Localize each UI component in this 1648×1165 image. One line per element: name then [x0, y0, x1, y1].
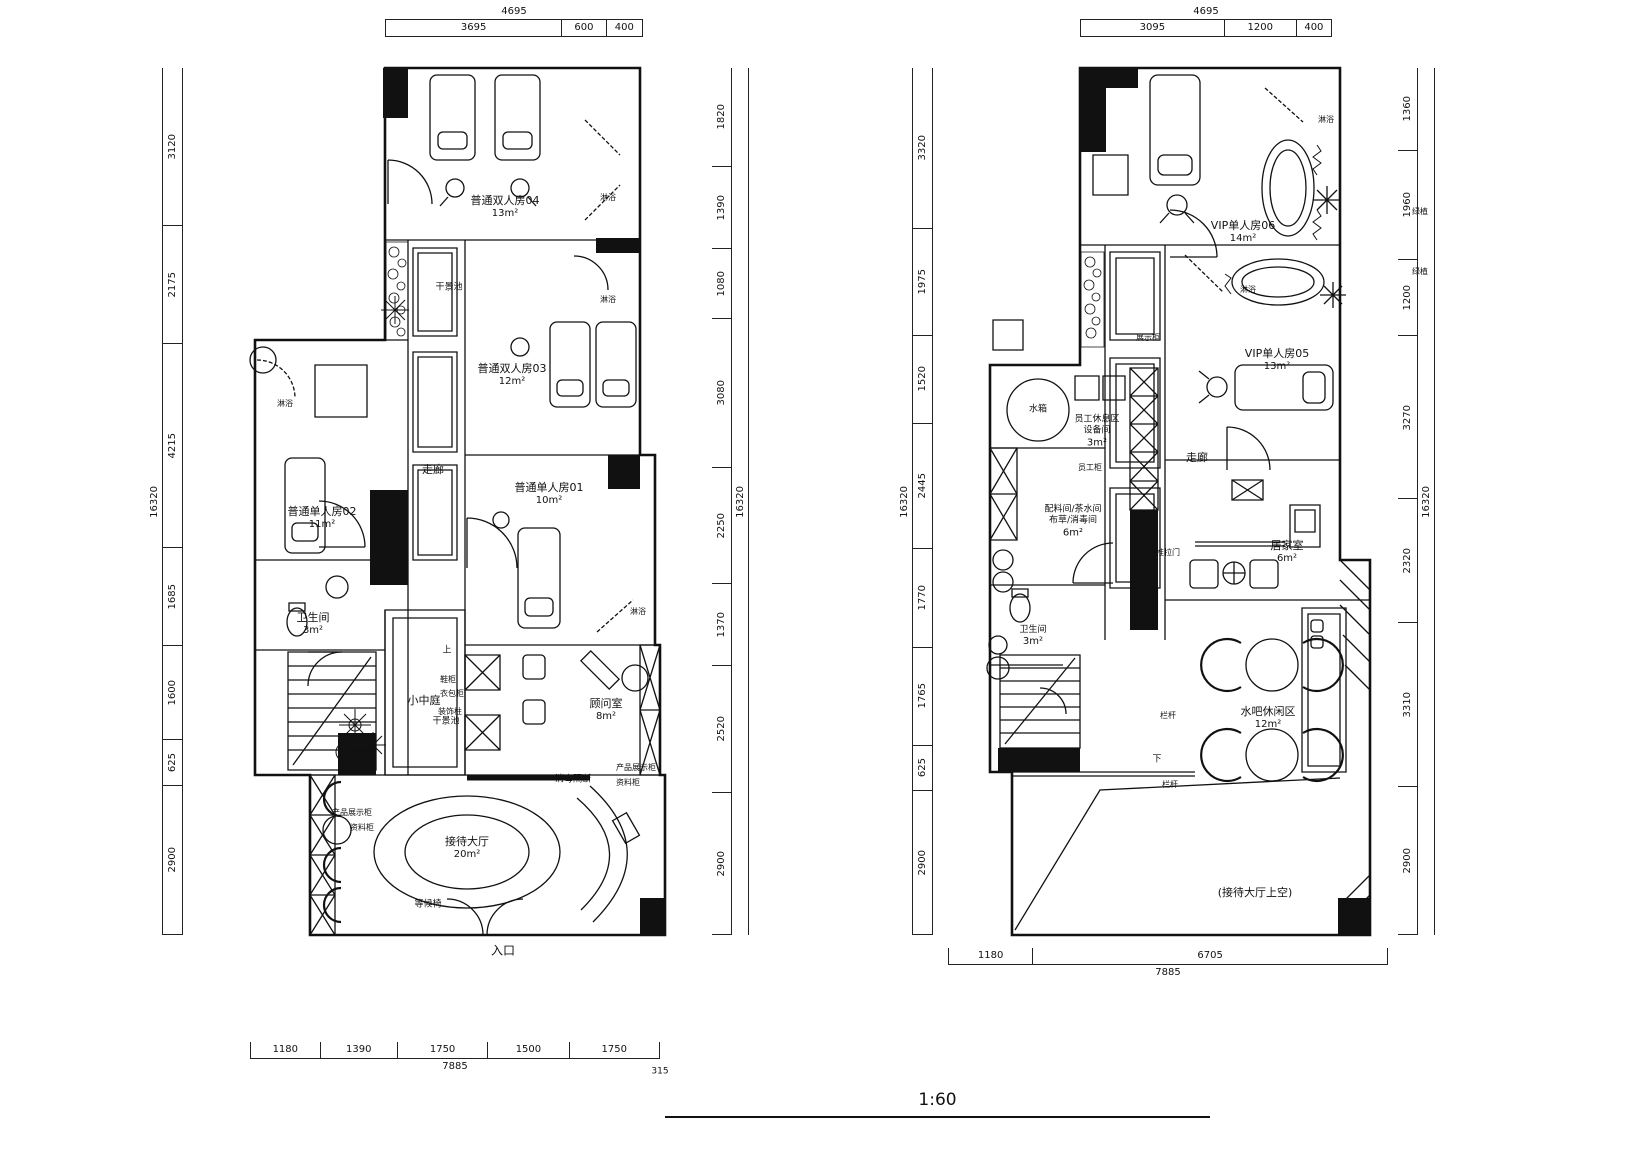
dim-segment: 3320 [913, 68, 932, 229]
plan2-right-dims: 1360196012003270232033102900 16320 [1398, 68, 1435, 935]
room-label-vip06: VIP单人房0614m² [1211, 219, 1275, 245]
pantry-cabinet-icon [990, 320, 1023, 592]
equipment-icon [1075, 376, 1125, 400]
dim-segment: 2445 [913, 424, 932, 550]
massage-bed-icon [1199, 365, 1333, 500]
stair-down-label: 下 [1152, 754, 1161, 765]
dim-segment: 1390 [321, 1042, 398, 1058]
dim-segment: 1500 [488, 1042, 569, 1058]
display-cabinet-label: 产品展示柜 [332, 808, 372, 818]
room-label-double04: 普通双人房0413m² [471, 194, 540, 220]
water-tank-label: 水箱 [1029, 404, 1047, 415]
plant-strip [1081, 252, 1104, 347]
room-label-atrium: 小中庭 [408, 694, 441, 708]
dim-extra: 315 [651, 1066, 668, 1077]
dim-segment: 6705 [1033, 948, 1388, 964]
display-cabinet-label: 产品展示柜 [616, 763, 656, 773]
room-label-bathroom2: 卫生间3m² [1019, 625, 1046, 649]
dim-segment: 1180 [948, 948, 1033, 964]
reception-desk-icon [577, 786, 639, 922]
door-icon [308, 160, 608, 935]
plan1-left-dims: 16320 312021754215168516006252900 [146, 68, 183, 935]
dim-segment: 1360 [1398, 68, 1417, 151]
corridor-label: 走廊 [422, 463, 444, 477]
corridor-cabinet-icon [413, 248, 457, 560]
dim-segment: 1370 [712, 584, 731, 665]
dim-segment: 2900 [163, 786, 182, 935]
room-label-living: 居家室6m² [1271, 539, 1304, 565]
bathtub-icon [1225, 259, 1324, 305]
shower-label: 淋浴 [1318, 115, 1334, 125]
file-cabinet-label: 资料柜 [616, 778, 640, 788]
plan1-top-dims: 4695 3695600400 [385, 4, 643, 37]
dim-segment: 3120 [163, 68, 182, 226]
dim-segment: 1770 [913, 549, 932, 647]
dim-segment: 625 [163, 740, 182, 786]
dim-segment: 3095 [1080, 20, 1225, 36]
door-icon [1040, 210, 1270, 714]
room-label-staff: 员工休息区设备间3m² [1074, 415, 1119, 450]
dim-segment: 1080 [712, 249, 731, 319]
dim-segment: 1390 [712, 167, 731, 249]
plan2-left-dims: 16320 3320197515202445177017656252900 [896, 68, 933, 935]
railing-label: 栏杆 [1160, 711, 1176, 721]
plan1-bottom-dims: 11801390175015001750 7885 [250, 1042, 660, 1074]
room-label-waterbar: 水吧休闲区12m² [1241, 705, 1296, 731]
room-label-bathroom1: 卫生间3m² [297, 611, 330, 637]
room-label-consult: 顾问室8m² [590, 697, 623, 723]
display-cabinet-label: 展示柜 [1136, 333, 1160, 343]
waiting-chair-label: 等候椅 [414, 899, 441, 910]
room-label-reception: 接待大厅20m² [445, 835, 489, 861]
massage-bed-icon [493, 512, 560, 628]
dim-total: 4695 [1080, 4, 1332, 20]
dim-segment: 2520 [712, 666, 731, 793]
dim-segment: 400 [1297, 20, 1332, 36]
dim-segment: 2900 [712, 793, 731, 935]
dim-segment: 4215 [163, 344, 182, 548]
dim-segment: 2900 [1398, 787, 1417, 935]
room-label-double03: 普通双人房0312m² [478, 362, 547, 388]
dim-segment: 3310 [1398, 623, 1417, 788]
dim-segment: 1750 [398, 1042, 488, 1058]
room-label-pantry: 配料间/茶水间布草/消毒间6m² [1044, 505, 1101, 540]
dim-segment: 1180 [250, 1042, 321, 1058]
entrance-label: 入口 [491, 944, 515, 959]
staff-cabinet-label: 员工柜 [1078, 463, 1102, 473]
dry-pool-label: 干景池 [432, 716, 459, 727]
dim-segment: 2320 [1398, 499, 1417, 622]
stairs-icon [1000, 655, 1080, 748]
dry-pool-label: 干景池 [435, 282, 462, 293]
dim-segment: 1765 [913, 648, 932, 746]
shower-label: 淋浴 [600, 193, 616, 203]
scale-bar: 1:60 [665, 1090, 1210, 1118]
dim-segment: 1975 [913, 229, 932, 336]
plan1-right-dims: 18201390108030802250137025202900 16320 [712, 68, 749, 935]
dim-segment: 3080 [712, 319, 731, 468]
dim-segment: 1200 [1398, 260, 1417, 337]
dim-segment: 1200 [1225, 20, 1297, 36]
shower-label: 淋浴 [1240, 285, 1256, 295]
plan2-drawing [945, 60, 1405, 960]
dim-segment: 1750 [570, 1042, 660, 1058]
dim-segment: 2175 [163, 226, 182, 344]
plant-strip [386, 242, 408, 340]
dim-total: 4695 [385, 4, 643, 20]
file-cabinet-label: 资料柜 [350, 823, 374, 833]
partition-label: 消毒隔断 [555, 774, 591, 785]
dim-segment: 600 [562, 20, 606, 36]
room-label-vip05: VIP单人房0513m² [1245, 347, 1309, 373]
sliding-door-label: 推拉门 [1156, 548, 1180, 558]
room-label-single01: 普通单人房0110m² [515, 481, 584, 507]
dim-segment: 2900 [913, 791, 932, 935]
scale-label: 1:60 [918, 1090, 956, 1110]
dim-segment: 1600 [163, 646, 182, 740]
massage-bed-icon [430, 75, 540, 206]
dim-segment: 1960 [1398, 151, 1417, 259]
floor-plan-canvas: 普通双人房0413m² 普通双人房0312m² 普通单人房0211m² 普通单人… [0, 0, 1648, 1165]
massage-bed-icon [1093, 75, 1200, 223]
void-outline [1015, 560, 1370, 930]
desk-chair-icon [523, 651, 648, 724]
shower-icon [1185, 88, 1303, 292]
dim-segment: 1820 [712, 68, 731, 167]
dim-segment: 400 [607, 20, 643, 36]
plan2-bottom-dims: 11806705 7885 [948, 948, 1388, 980]
room-label-single02: 普通单人房0211m² [288, 505, 357, 531]
dim-segment: 3270 [1398, 336, 1417, 499]
dim-segment: 1685 [163, 548, 182, 646]
shower-label: 淋浴 [600, 295, 616, 305]
deco-column-label: 装饰柱 [438, 707, 462, 717]
corridor-label: 走廊 [1186, 451, 1208, 465]
railing-label: 栏杆 [1162, 780, 1178, 790]
dim-segment: 625 [913, 746, 932, 791]
shower-label: 淋浴 [630, 607, 646, 617]
bag-cabinet-label: 衣包柜 [440, 689, 464, 699]
shower-label: 淋浴 [277, 399, 293, 409]
stair-up-label: 上 [442, 645, 451, 656]
shoe-cabinet-label: 鞋柜 [440, 675, 456, 685]
plan2-top-dims: 4695 30951200400 [1080, 4, 1332, 37]
dim-segment: 1520 [913, 336, 932, 424]
room-label-void: (接待大厅上空) [1218, 886, 1293, 900]
display-cabinet-icon [310, 645, 660, 935]
dim-segment: 2250 [712, 468, 731, 584]
dim-segment: 3695 [385, 20, 562, 36]
